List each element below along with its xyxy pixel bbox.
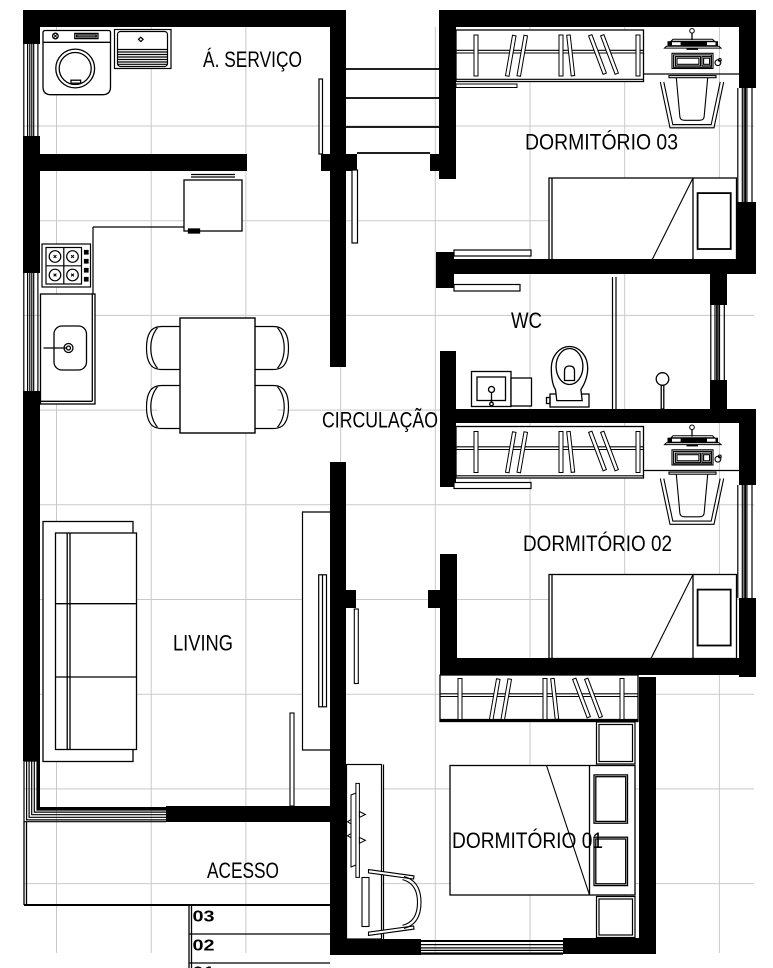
svg-text:DORMITÓRIO 01: DORMITÓRIO 01 (452, 828, 603, 853)
svg-text:03: 03 (193, 909, 215, 926)
svg-text:01: 01 (193, 965, 215, 968)
svg-text:CIRCULAÇÃO: CIRCULAÇÃO (322, 408, 438, 433)
svg-text:WC: WC (511, 308, 542, 333)
svg-text:DORMITÓRIO 02: DORMITÓRIO 02 (523, 531, 672, 556)
svg-text:ACESSO: ACESSO (207, 858, 279, 883)
svg-text:LIVING: LIVING (173, 631, 233, 656)
svg-text:Á. SERVIÇO: Á. SERVIÇO (203, 47, 302, 72)
svg-text:02: 02 (193, 938, 215, 955)
svg-text:DORMITÓRIO 03: DORMITÓRIO 03 (525, 130, 678, 155)
